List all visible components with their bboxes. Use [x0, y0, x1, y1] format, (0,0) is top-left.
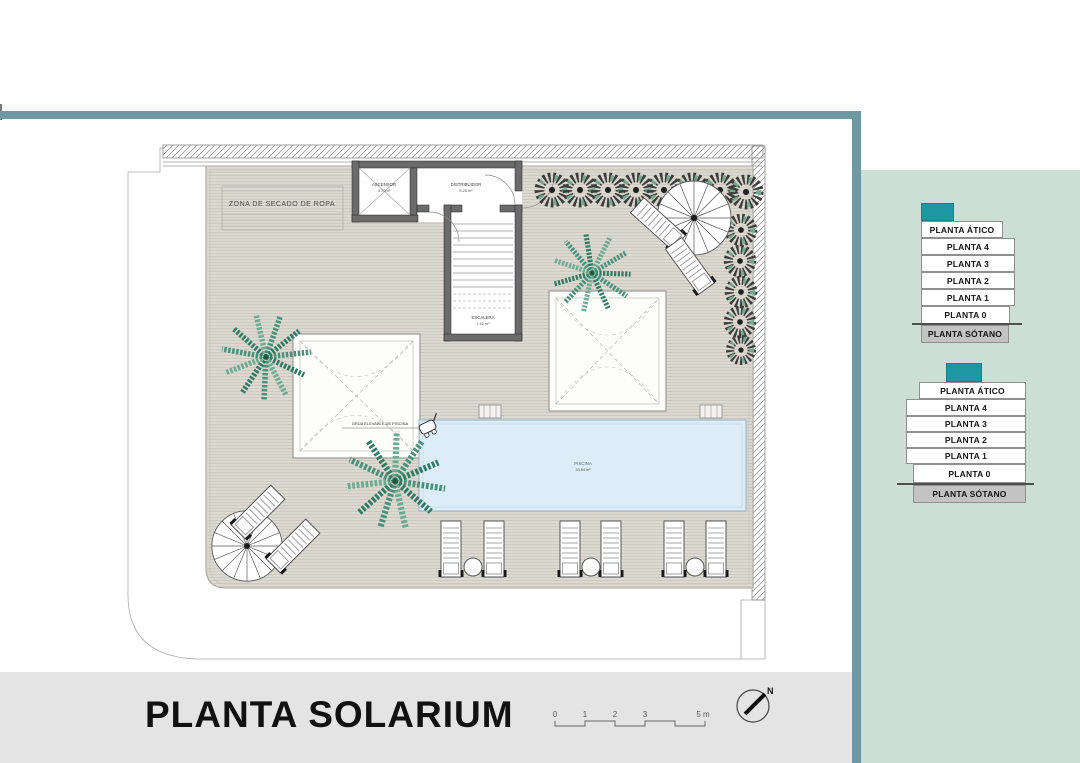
floor-button-4[interactable]: PLANTA 4 — [921, 238, 1015, 255]
pool: PISCINA 33.64 m² — [419, 420, 746, 511]
skylight-right — [549, 291, 666, 411]
hall-label: DISTRIBUIDOR — [451, 182, 482, 187]
pool-area: 33.64 m² — [575, 467, 591, 472]
drying-zone-label: ZONA DE SECADO DE ROPA — [229, 201, 335, 208]
elevator-area: 3.72m² — [378, 188, 391, 193]
stairs-label: ESCALERA — [472, 315, 495, 320]
floor-button-0[interactable]: PLANTA 0 — [921, 306, 1010, 324]
floor-button-1[interactable]: PLANTA 1 — [921, 289, 1015, 306]
current-floor-indicator[interactable] — [946, 363, 982, 382]
scale-and-north: 0 1 2 3 5 m N — [520, 672, 810, 763]
frame-side-bar — [852, 111, 861, 763]
floor-button-sotano[interactable]: PLANTA SÓTANO — [913, 485, 1026, 503]
scale-tick: 1 — [583, 710, 588, 719]
scale-tick: 0 — [553, 710, 558, 719]
floor-button-2[interactable]: PLANTA 2 — [921, 272, 1015, 289]
floor-button-3[interactable]: PLANTA 3 — [906, 416, 1026, 432]
floor-button-atico[interactable]: PLANTA ÁTICO — [919, 382, 1026, 399]
floorplan-viewer: ZONA DE SECADO DE ROPA PISCINA 33.64 m² — [0, 0, 1080, 763]
floor-button-atico[interactable]: PLANTA ÁTICO — [921, 221, 1003, 238]
north-arrow-icon: N — [737, 686, 774, 722]
page-title: PLANTA SOLARIUM — [145, 694, 514, 736]
scale-tick: 3 — [643, 710, 648, 719]
floor-button-4[interactable]: PLANTA 4 — [906, 399, 1026, 416]
floor-button-0[interactable]: PLANTA 0 — [913, 464, 1026, 483]
scale-tick: 2 — [613, 710, 618, 719]
floor-button-sotano[interactable]: PLANTA SÓTANO — [921, 325, 1009, 343]
floor-plan-drawing: ZONA DE SECADO DE ROPA PISCINA 33.64 m² — [0, 119, 861, 672]
floor-button-1[interactable]: PLANTA 1 — [906, 448, 1026, 464]
north-label: N — [767, 686, 774, 696]
pool-label: PISCINA — [574, 461, 592, 466]
hall-area: 5.26 m² — [459, 188, 473, 193]
scale-bar: 0 1 2 3 5 m — [553, 710, 710, 726]
skylight-left — [293, 334, 420, 458]
floor-button-2[interactable]: PLANTA 2 — [906, 432, 1026, 448]
floor-button-3[interactable]: PLANTA 3 — [921, 255, 1015, 272]
frame-top-bar — [0, 111, 861, 119]
elevator-label: ASCENSOR — [372, 182, 396, 187]
pool-hoist-label: GRÚA ELEVABLE DE PISCINA — [352, 421, 409, 426]
stairs-area: 7.92 m² — [476, 321, 490, 326]
scale-tick: 5 m — [696, 710, 710, 719]
current-floor-indicator[interactable] — [921, 203, 954, 221]
